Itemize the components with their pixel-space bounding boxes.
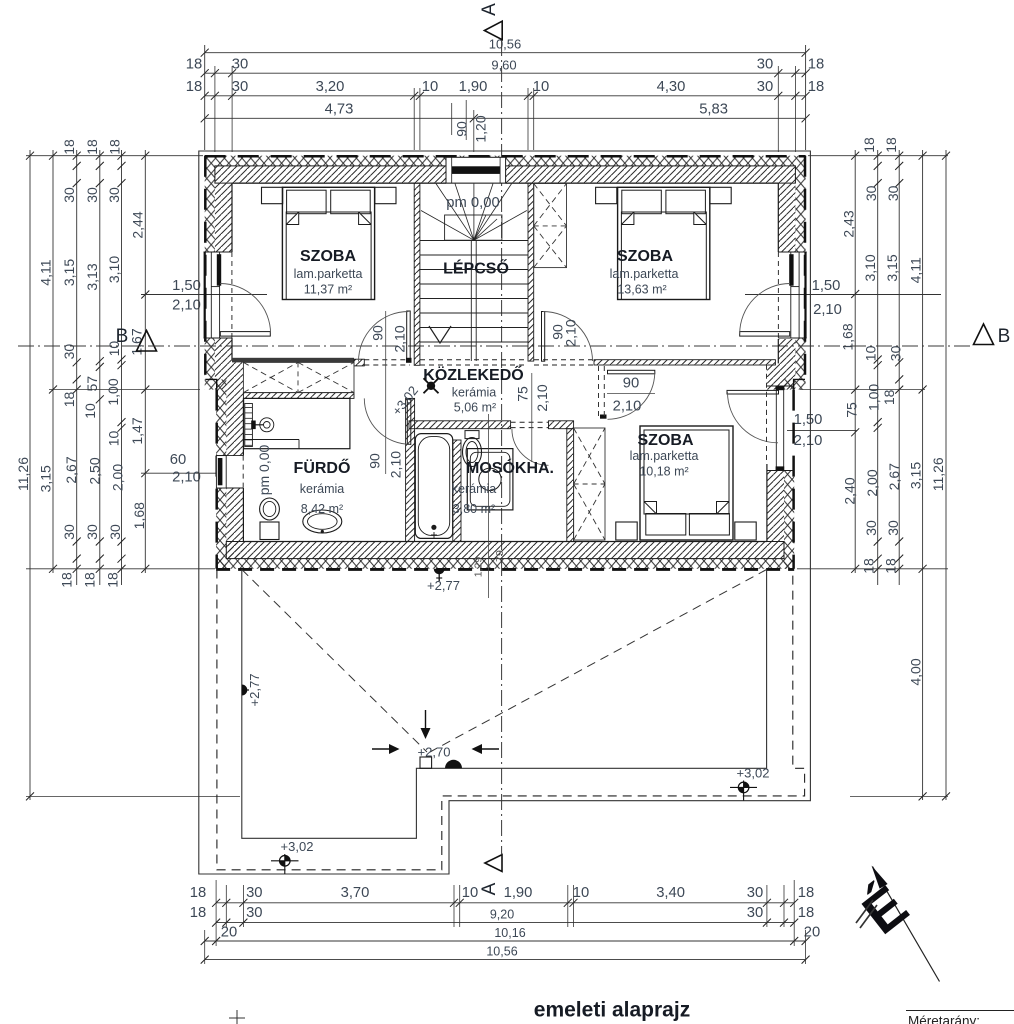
svg-text:5,83: 5,83: [699, 102, 728, 118]
svg-text:2,10: 2,10: [172, 470, 201, 486]
svg-text:90: 90: [454, 121, 470, 137]
svg-text:75: 75: [515, 386, 531, 402]
svg-text:2,44: 2,44: [130, 211, 146, 238]
svg-text:18: 18: [808, 79, 824, 95]
svg-text:3,40: 3,40: [656, 885, 685, 901]
svg-text:3,15: 3,15: [38, 465, 54, 492]
svg-text:18: 18: [881, 389, 897, 405]
svg-text:+3,02: +3,02: [737, 766, 770, 781]
svg-text:30: 30: [888, 345, 904, 361]
svg-text:10: 10: [106, 431, 122, 447]
svg-text:pm 0,00: pm 0,00: [446, 195, 499, 211]
svg-text:emeleti alaprajz: emeleti alaprajz: [534, 999, 690, 1022]
svg-text:2,10: 2,10: [794, 433, 823, 449]
svg-text:18: 18: [61, 139, 77, 155]
svg-text:5,06 m²: 5,06 m²: [454, 401, 496, 415]
svg-text:lam.parketta: lam.parketta: [630, 449, 699, 463]
svg-text:SZOBA: SZOBA: [638, 432, 694, 449]
svg-text:18: 18: [883, 137, 899, 153]
svg-text:18: 18: [186, 57, 202, 73]
svg-text:11,26: 11,26: [15, 457, 31, 491]
svg-text:30: 30: [757, 79, 773, 95]
svg-text:2,10: 2,10: [613, 399, 642, 415]
svg-text:É: É: [851, 873, 919, 946]
svg-text:10,16: 10,16: [494, 926, 525, 940]
svg-text:3,70: 3,70: [341, 885, 370, 901]
svg-text:18: 18: [186, 79, 202, 95]
svg-text:2,10: 2,10: [392, 325, 408, 352]
svg-text:30: 30: [246, 885, 262, 901]
svg-text:pm 0,00: pm 0,00: [256, 444, 272, 495]
svg-text:10: 10: [573, 885, 589, 901]
svg-text:30: 30: [232, 57, 248, 73]
svg-text:1,68: 1,68: [840, 323, 856, 350]
svg-text:4,30: 4,30: [657, 79, 686, 95]
svg-text:B: B: [998, 326, 1011, 347]
svg-text:SZOBA: SZOBA: [617, 248, 673, 265]
svg-text:9,60: 9,60: [491, 58, 516, 73]
svg-text:18: 18: [61, 392, 77, 408]
svg-text:1,47: 1,47: [129, 417, 145, 444]
svg-text:30: 30: [84, 524, 100, 540]
svg-text:18: 18: [798, 905, 814, 921]
svg-text:30: 30: [107, 524, 123, 540]
svg-text:2,10: 2,10: [563, 319, 579, 346]
svg-text:10: 10: [422, 79, 438, 95]
svg-text:3,10: 3,10: [106, 256, 122, 283]
svg-text:18: 18: [59, 572, 75, 588]
svg-text:30: 30: [61, 524, 77, 540]
svg-text:1,50: 1,50: [812, 278, 841, 294]
svg-text:3,10: 3,10: [862, 254, 878, 281]
svg-text:1,68: 1,68: [131, 502, 147, 529]
svg-text:10: 10: [533, 79, 549, 95]
svg-text:2,10: 2,10: [534, 384, 550, 411]
svg-text:13,63 m²: 13,63 m²: [617, 283, 666, 297]
svg-text:20: 20: [221, 925, 237, 941]
svg-text:3,15: 3,15: [908, 462, 924, 489]
svg-text:FÜRDŐ: FÜRDŐ: [294, 458, 351, 477]
svg-text:3,15: 3,15: [884, 254, 900, 281]
svg-text:60: 60: [170, 452, 186, 468]
svg-text:2,00: 2,00: [864, 469, 880, 496]
svg-text:1,50: 1,50: [794, 412, 823, 428]
svg-text:10: 10: [82, 403, 98, 419]
svg-text:3,20: 3,20: [316, 79, 345, 95]
svg-text:2,00: 2,00: [110, 464, 126, 491]
svg-text:18: 18: [798, 885, 814, 901]
svg-text:18: 18: [84, 139, 100, 155]
svg-text:1,00: 1,00: [105, 378, 121, 405]
svg-text:30: 30: [757, 57, 773, 73]
svg-text:+3,02: +3,02: [281, 839, 314, 854]
svg-text:A: A: [479, 882, 500, 895]
svg-text:18: 18: [861, 558, 877, 574]
svg-text:3,15: 3,15: [61, 259, 77, 286]
svg-text:18: 18: [808, 57, 824, 73]
svg-text:1,90: 1,90: [459, 79, 488, 95]
svg-text:11,26: 11,26: [930, 457, 946, 491]
svg-text:2,67: 2,67: [886, 463, 902, 490]
svg-text:75: 75: [844, 402, 860, 418]
svg-text:79: 79: [494, 550, 506, 562]
svg-text:2,40: 2,40: [842, 477, 858, 504]
svg-text:kerámia: kerámia: [452, 386, 497, 400]
svg-text:30: 30: [106, 187, 122, 203]
svg-text:10: 10: [462, 885, 478, 901]
svg-text:30: 30: [232, 79, 248, 95]
svg-text:SZOBA: SZOBA: [300, 248, 356, 265]
svg-text:2,10: 2,10: [388, 451, 404, 478]
svg-text:1,90: 1,90: [504, 885, 533, 901]
svg-text:18: 18: [107, 139, 123, 155]
svg-text:30: 30: [863, 520, 879, 536]
svg-text:4,00: 4,00: [908, 658, 924, 685]
svg-text:30: 30: [885, 520, 901, 536]
svg-text:A: A: [479, 3, 500, 16]
svg-text:18: 18: [105, 572, 121, 588]
svg-text:+2,77: +2,77: [247, 674, 262, 707]
svg-text:KÖZLEKEDŐ: KÖZLEKEDŐ: [423, 365, 523, 384]
svg-text:8,42 m²: 8,42 m²: [301, 502, 343, 516]
svg-text:11,37 m²: 11,37 m²: [304, 283, 352, 297]
svg-text:10,56: 10,56: [489, 37, 522, 52]
svg-text:4,11: 4,11: [908, 257, 924, 283]
svg-text:MOSÓKHA.: MOSÓKHA.: [466, 458, 554, 477]
svg-text:90: 90: [367, 453, 383, 469]
svg-text:90: 90: [623, 376, 639, 392]
svg-text:18: 18: [82, 572, 98, 588]
svg-text:30: 30: [246, 905, 262, 921]
svg-text:2,10: 2,10: [813, 302, 842, 318]
svg-text:10,18 m²: 10,18 m²: [639, 465, 688, 479]
svg-text:18: 18: [883, 558, 899, 574]
svg-text:kerámia: kerámia: [452, 482, 497, 496]
svg-text:90: 90: [370, 325, 386, 341]
svg-text:10,56: 10,56: [486, 945, 517, 959]
svg-text:4,11: 4,11: [38, 259, 54, 285]
svg-text:LÉPCSŐ: LÉPCSŐ: [443, 259, 509, 278]
svg-text:30: 30: [863, 185, 879, 201]
svg-text:Méretarány:: Méretarány:: [908, 1014, 980, 1024]
svg-text:18: 18: [190, 905, 206, 921]
svg-text:kerámia: kerámia: [300, 482, 345, 496]
svg-text:3,13: 3,13: [84, 263, 100, 290]
svg-text:18: 18: [190, 885, 206, 901]
svg-text:30: 30: [84, 187, 100, 203]
svg-text:2,10: 2,10: [172, 298, 201, 314]
svg-text:18: 18: [861, 137, 877, 153]
svg-text:1,50: 1,50: [172, 278, 201, 294]
svg-text:+2,77: +2,77: [427, 578, 460, 593]
svg-text:1,00: 1,00: [866, 384, 882, 411]
svg-text:30: 30: [61, 187, 77, 203]
svg-text:30: 30: [747, 905, 763, 921]
svg-text:9,20: 9,20: [490, 908, 514, 922]
svg-text:2,50: 2,50: [86, 457, 102, 484]
svg-text:2,43: 2,43: [841, 210, 857, 237]
svg-text:1,29: 1,29: [473, 557, 485, 578]
svg-text:lam.parketta: lam.parketta: [294, 267, 363, 281]
svg-text:1,20: 1,20: [473, 115, 489, 142]
svg-text:10: 10: [863, 345, 879, 361]
svg-text:20: 20: [804, 925, 820, 941]
svg-text:B: B: [116, 326, 129, 347]
svg-text:lam.parketta: lam.parketta: [610, 267, 679, 281]
svg-text:2,67: 2,67: [63, 456, 79, 483]
svg-text:30: 30: [885, 185, 901, 201]
svg-text:+3,02: +3,02: [389, 383, 421, 418]
svg-text:30: 30: [747, 885, 763, 901]
svg-text:4,73: 4,73: [325, 102, 354, 118]
